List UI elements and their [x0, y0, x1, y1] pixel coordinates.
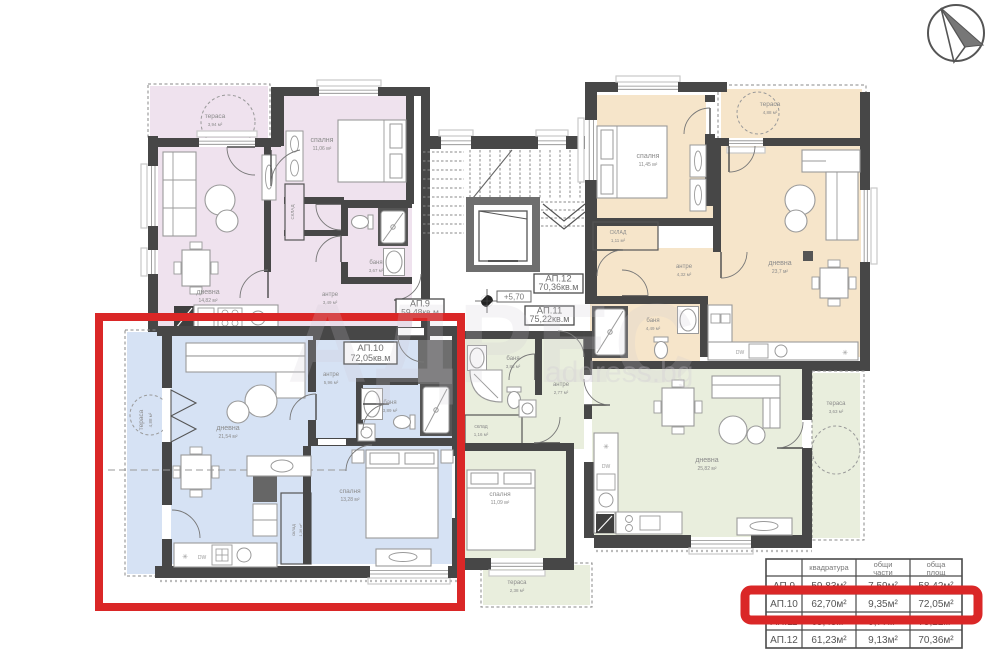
- svg-text:тераса: тераса: [826, 401, 846, 407]
- svg-text:62,70м²: 62,70м²: [811, 599, 847, 610]
- svg-text:1,11 м²: 1,11 м²: [611, 238, 626, 243]
- svg-text:11,45 м²: 11,45 м²: [639, 162, 658, 168]
- svg-text:21,54 м²: 21,54 м²: [218, 434, 237, 440]
- svg-text:11,09 м²: 11,09 м²: [491, 500, 510, 506]
- svg-text:4,88 м²: 4,88 м²: [763, 110, 778, 115]
- svg-text:14,82 м²: 14,82 м²: [198, 298, 217, 304]
- svg-text:тераса: тераса: [507, 580, 527, 586]
- svg-text:4,88 м²: 4,88 м²: [148, 412, 153, 427]
- svg-text:3,89 м²: 3,89 м²: [383, 408, 398, 413]
- svg-text:СКЛАД: СКЛАД: [610, 230, 627, 236]
- svg-text:✳: ✳: [603, 443, 609, 451]
- svg-text:части: части: [873, 568, 892, 577]
- svg-text:дневна: дневна: [196, 289, 219, 296]
- svg-text:спалня: спалня: [489, 491, 511, 498]
- svg-text:дневна: дневна: [768, 260, 791, 267]
- svg-text:DW: DW: [198, 555, 207, 561]
- svg-text:тераса: тераса: [205, 113, 226, 120]
- svg-text:11,06 м²: 11,06 м²: [313, 146, 332, 152]
- svg-text:1,16 м²: 1,16 м²: [474, 432, 489, 437]
- svg-text:баня: баня: [369, 260, 382, 266]
- svg-text:АП.10: АП.10: [770, 599, 798, 610]
- svg-text:72,05м²: 72,05м²: [918, 599, 954, 610]
- svg-text:тераса: тераса: [760, 101, 781, 108]
- svg-text:дневна: дневна: [695, 457, 718, 464]
- svg-text:1,36 м²: 1,36 м²: [298, 523, 303, 537]
- svg-text:СКЛАД: СКЛАД: [290, 204, 295, 219]
- svg-text:спалня: спалня: [339, 488, 361, 495]
- svg-text:антре: антре: [676, 264, 693, 270]
- svg-text:25,82 м²: 25,82 м²: [697, 466, 716, 472]
- svg-text:склад: склад: [474, 424, 487, 430]
- svg-text:спалня: спалня: [311, 137, 334, 144]
- svg-text:13,28 м²: 13,28 м²: [340, 497, 359, 503]
- svg-text:9,35м²: 9,35м²: [868, 599, 898, 610]
- svg-text:70,36м²: 70,36м²: [918, 635, 954, 646]
- svg-text:✳: ✳: [182, 553, 188, 561]
- svg-text:9,13м²: 9,13м²: [868, 635, 898, 646]
- svg-text:тераса: тераса: [138, 409, 145, 430]
- svg-text:3,67 м²: 3,67 м²: [369, 268, 384, 273]
- svg-text:квадратура: квадратура: [809, 563, 849, 572]
- svg-text:склад: склад: [291, 524, 296, 536]
- svg-text:3,94 м²: 3,94 м²: [208, 122, 223, 127]
- svg-text:спалня: спалня: [637, 153, 660, 160]
- svg-text:площ: площ: [927, 568, 946, 577]
- svg-text:61,23м²: 61,23м²: [811, 635, 847, 646]
- svg-text:дневна: дневна: [216, 425, 239, 432]
- svg-text:DW: DW: [736, 350, 745, 356]
- svg-text:DW: DW: [602, 464, 611, 470]
- svg-text:3,63 м²: 3,63 м²: [829, 409, 844, 414]
- svg-text:2,38 м²: 2,38 м²: [510, 588, 525, 593]
- svg-text:4,32 м²: 4,32 м²: [677, 272, 692, 277]
- svg-text:23,7 м²: 23,7 м²: [772, 269, 789, 275]
- svg-text:address.bg: address.bg: [545, 356, 693, 389]
- svg-text:АП.12: АП.12: [770, 635, 798, 646]
- svg-text:✳: ✳: [842, 349, 848, 357]
